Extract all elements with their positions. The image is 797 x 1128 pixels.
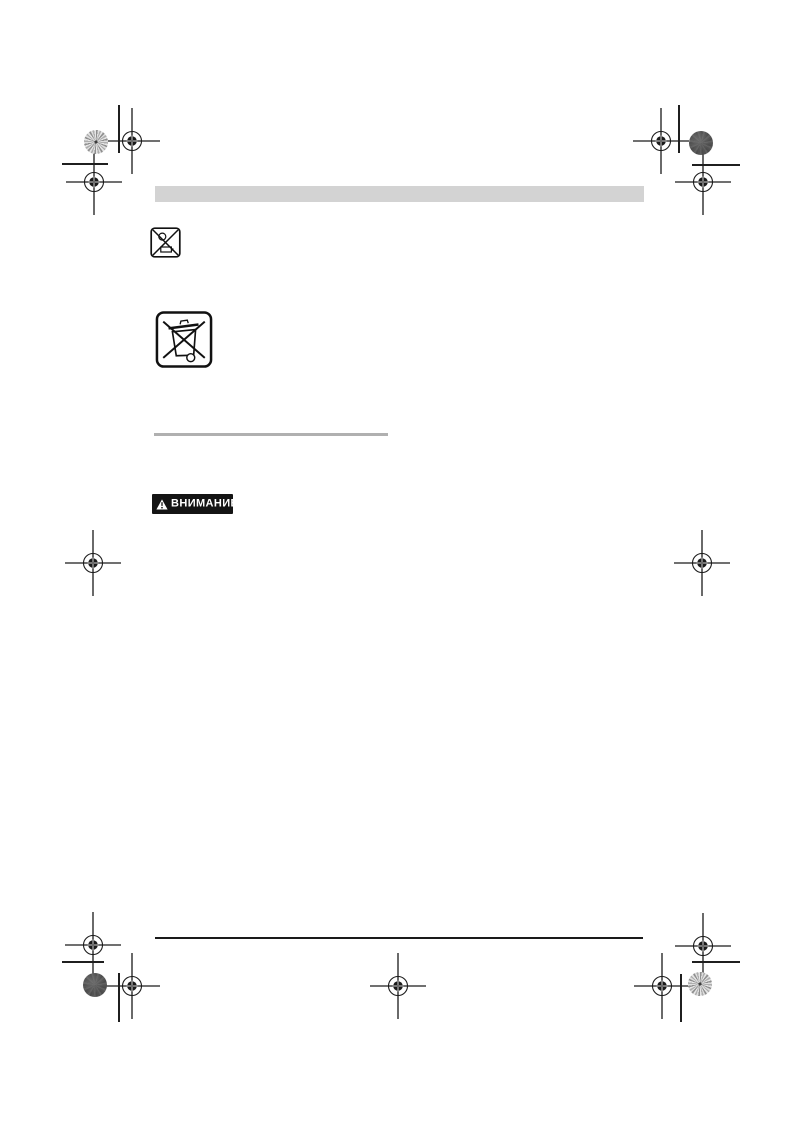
registration-mark-icon <box>368 952 428 1020</box>
footer-rule <box>155 937 643 939</box>
color-control-disc-icon <box>689 131 713 155</box>
trim-line <box>118 105 120 153</box>
trim-line <box>680 974 682 1022</box>
section-divider <box>154 433 388 436</box>
section-header-bar <box>155 186 644 202</box>
color-control-disc-icon <box>688 972 712 996</box>
warning-badge: ВНИМАНИЕ <box>152 494 233 514</box>
trim-line <box>692 961 740 963</box>
registration-mark-icon <box>672 529 732 597</box>
warning-triangle-icon <box>156 499 168 510</box>
trim-line <box>692 164 740 166</box>
registration-mark-icon <box>632 952 692 1020</box>
color-control-disc-icon <box>83 973 107 997</box>
warning-badge-label: ВНИМАНИЕ <box>171 498 238 509</box>
trim-line <box>678 105 680 153</box>
trim-line <box>62 163 108 165</box>
registration-mark-icon <box>102 952 162 1020</box>
crossed-out-battery-icon <box>150 227 181 258</box>
registration-mark-icon <box>63 529 123 597</box>
trim-line <box>118 973 120 1022</box>
crossed-out-wheelie-bin-icon <box>155 311 213 368</box>
trim-line <box>62 961 104 963</box>
registration-mark-icon <box>673 148 733 216</box>
manual-page: ВНИМАНИЕ <box>0 0 797 1128</box>
color-control-disc-icon <box>84 130 108 154</box>
registration-mark-icon <box>64 148 124 216</box>
